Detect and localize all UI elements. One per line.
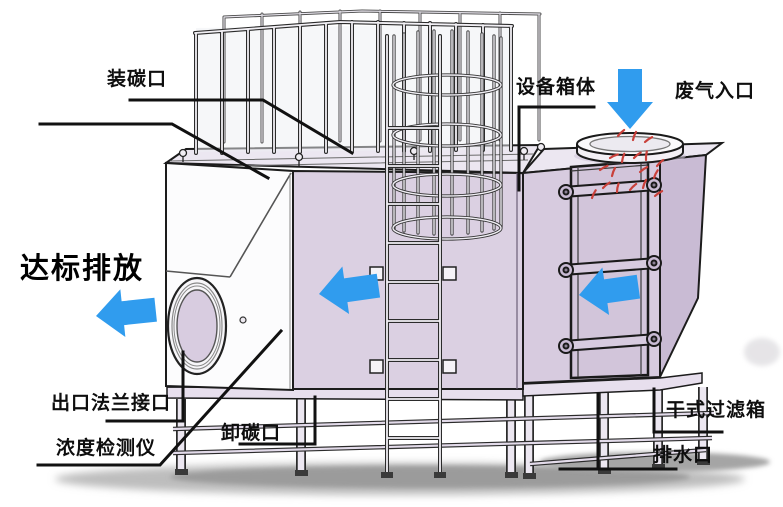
- label-waste-gas-inlet: 废气入口: [675, 81, 755, 103]
- label-drain-outlet: 排水口: [653, 445, 713, 467]
- platform-railing: [195, 11, 540, 153]
- filter-box: [523, 133, 722, 383]
- outlet-section: [166, 163, 293, 390]
- adsorption-box: [166, 145, 540, 390]
- label-carbon-loading-port: 装碳口: [107, 69, 167, 91]
- flange-bolt: [240, 317, 246, 323]
- label-outlet-flange-port: 出口法兰接口: [51, 393, 171, 415]
- gas-inlet-flange: [574, 133, 686, 164]
- filter-box-door: [559, 161, 661, 378]
- label-equipment-box-body: 设备箱体: [516, 77, 596, 99]
- label-dry-filter-box: 干式过滤箱: [666, 400, 766, 422]
- label-carbon-unloading-port: 卸碳口: [221, 423, 281, 445]
- flow-arrow-inlet: [607, 69, 653, 129]
- label-concentration-detector: 浓度检测仪: [56, 438, 156, 460]
- flow-arrow-discharge: [93, 286, 158, 340]
- equipment-diagram: 装碳口 设备箱体 废气入口 达标排放 出口法兰接口 浓度检测仪 卸碳口 干式过滤…: [0, 0, 783, 507]
- filter-box-side: [660, 155, 706, 377]
- label-compliant-discharge: 达标排放: [20, 252, 144, 285]
